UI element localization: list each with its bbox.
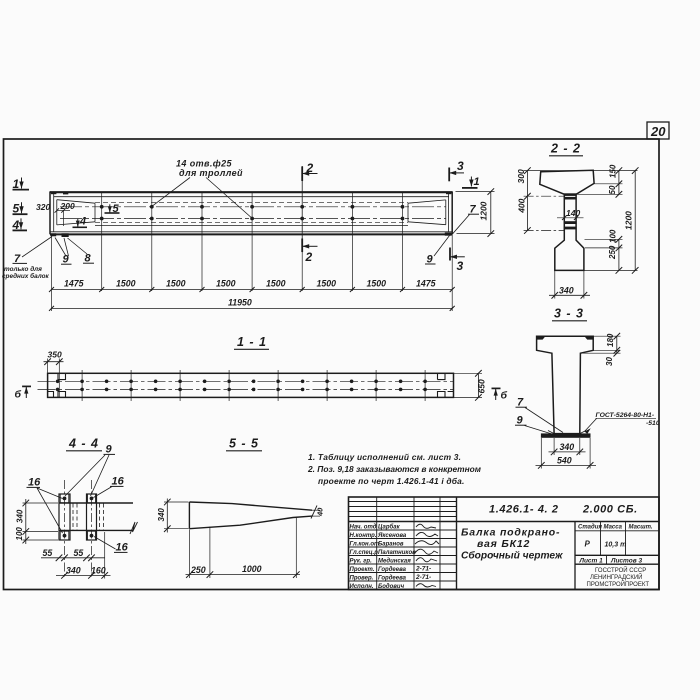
- svg-text:ГОССТРОЙ СССР: ГОССТРОЙ СССР: [595, 566, 646, 574]
- svg-text:Провер.: Провер.: [350, 575, 374, 581]
- svg-text:150: 150: [609, 164, 618, 178]
- svg-text:250: 250: [190, 565, 206, 575]
- svg-text:100: 100: [609, 229, 618, 243]
- svg-text:50: 50: [608, 185, 617, 194]
- svg-text:вая БК12: вая БК12: [477, 538, 530, 550]
- svg-text:5 - 5: 5 - 5: [229, 437, 259, 451]
- svg-text:2-71-: 2-71-: [415, 566, 431, 573]
- svg-text:Гордеева: Гордеева: [378, 575, 407, 581]
- svg-text:Масшт.: Масшт.: [629, 525, 653, 531]
- svg-text:340: 340: [66, 566, 81, 576]
- svg-text:1500: 1500: [266, 278, 286, 288]
- svg-text:б: б: [501, 390, 508, 402]
- svg-text:16: 16: [116, 542, 129, 554]
- svg-text:320: 320: [36, 202, 50, 212]
- svg-text:1475: 1475: [416, 278, 436, 288]
- svg-text:Бодович: Бодович: [378, 584, 405, 590]
- svg-text:Баранов: Баранов: [378, 541, 404, 547]
- svg-text:1475: 1475: [64, 278, 84, 288]
- svg-text:16: 16: [28, 477, 41, 489]
- svg-text:1500: 1500: [116, 278, 136, 288]
- svg-text:Яксенова: Яксенова: [377, 533, 407, 539]
- svg-text:-510: -510: [646, 420, 660, 427]
- svg-text:Сборочный чертеж: Сборочный чертеж: [461, 550, 563, 562]
- svg-text:Листов 3: Листов 3: [610, 557, 642, 564]
- svg-text:Балка подкрано-: Балка подкрано-: [461, 527, 560, 539]
- svg-text:б: б: [15, 389, 22, 401]
- svg-text:ПРОМСТРОЙПРОЕКТ: ПРОМСТРОЙПРОЕКТ: [587, 580, 650, 588]
- svg-text:16: 16: [112, 476, 125, 488]
- svg-text:1.426.1- 4. 2: 1.426.1- 4. 2: [489, 504, 559, 516]
- svg-text:5: 5: [113, 203, 120, 215]
- svg-text:Гл.спец.р: Гл.спец.р: [350, 550, 379, 556]
- svg-text:2-71-: 2-71-: [415, 574, 431, 581]
- svg-text:340: 340: [157, 508, 166, 522]
- svg-text:только для: только для: [4, 265, 42, 273]
- svg-text:14 отв.ф25: 14 отв.ф25: [176, 159, 233, 169]
- svg-text:180: 180: [606, 333, 615, 347]
- svg-text:Лист 1: Лист 1: [579, 557, 604, 564]
- svg-text:Царбак: Царбак: [378, 523, 401, 530]
- svg-text:340: 340: [560, 442, 575, 452]
- svg-text:Нач. отд: Нач. отд: [350, 524, 377, 530]
- svg-text:1500: 1500: [216, 278, 236, 288]
- svg-text:1000: 1000: [242, 564, 262, 574]
- svg-text:для троллей: для троллей: [179, 168, 243, 178]
- svg-text:1500: 1500: [367, 278, 387, 288]
- svg-text:20: 20: [650, 124, 666, 139]
- svg-text:160: 160: [91, 566, 106, 576]
- svg-text:1 - 1: 1 - 1: [237, 335, 267, 349]
- svg-text:1200: 1200: [479, 201, 489, 220]
- svg-text:55: 55: [74, 548, 84, 558]
- svg-text:средних балок: средних балок: [2, 272, 50, 280]
- svg-text:проекте по черт 1.426.1-41: проекте по черт 1.426.1-41 і дба.: [318, 476, 465, 486]
- svg-text:Стадия: Стадия: [578, 525, 602, 531]
- svg-text:Н.контр.: Н.контр.: [350, 533, 377, 539]
- svg-text:3 - 3: 3 - 3: [554, 307, 584, 321]
- svg-text:1200: 1200: [624, 211, 634, 230]
- svg-text:4 - 4: 4 - 4: [68, 437, 99, 451]
- svg-text:140: 140: [566, 208, 580, 218]
- svg-text:1500: 1500: [166, 278, 186, 288]
- svg-text:200: 200: [60, 201, 75, 211]
- svg-text:Масса: Масса: [604, 525, 623, 531]
- svg-text:1. Таблицу исполнений см. ли: 1. Таблицу исполнений см. лист 3.: [308, 452, 461, 462]
- svg-text:Р: Р: [585, 540, 591, 549]
- svg-text:1: 1: [474, 176, 480, 188]
- svg-text:30: 30: [605, 357, 614, 366]
- svg-text:340: 340: [16, 509, 25, 523]
- svg-text:540: 540: [557, 456, 572, 466]
- svg-text:2: 2: [306, 161, 314, 175]
- svg-text:250: 250: [608, 245, 617, 260]
- svg-text:10,3 т: 10,3 т: [605, 542, 627, 549]
- svg-text:ЛЕНИНГРАДСКИЙ: ЛЕНИНГРАДСКИЙ: [590, 573, 643, 581]
- svg-text:650: 650: [477, 379, 487, 393]
- svg-text:55: 55: [43, 548, 53, 558]
- svg-text:2.000 СБ.: 2.000 СБ.: [582, 504, 638, 516]
- svg-text:Мединская: Мединская: [378, 558, 411, 564]
- svg-text:Гордеева: Гордеева: [378, 567, 407, 573]
- svg-text:300: 300: [516, 169, 526, 183]
- svg-text:9: 9: [106, 444, 113, 456]
- svg-text:11950: 11950: [228, 297, 252, 307]
- svg-text:Исполн.: Исполн.: [350, 584, 374, 590]
- svg-text:1500: 1500: [317, 278, 337, 288]
- svg-text:3: 3: [457, 159, 464, 173]
- svg-text:Рук. гр.: Рук. гр.: [350, 558, 373, 564]
- svg-text:400: 400: [517, 198, 527, 213]
- svg-text:4: 4: [79, 216, 86, 228]
- svg-text:Проект.: Проект.: [350, 567, 375, 573]
- svg-text:Палатников: Палатников: [378, 550, 416, 556]
- svg-text:100: 100: [15, 527, 24, 541]
- svg-text:2: 2: [305, 250, 313, 264]
- svg-text:350: 350: [48, 350, 62, 360]
- svg-text:40: 40: [316, 507, 325, 517]
- svg-text:2 - 2: 2 - 2: [550, 142, 581, 156]
- svg-text:Гл.кон.от: Гл.кон.от: [350, 541, 381, 547]
- svg-text:340: 340: [559, 286, 574, 296]
- svg-text:3: 3: [457, 259, 464, 273]
- svg-text:2. Поз. 9,18 заказываются в ко: 2. Поз. 9,18 заказываются в конкретном: [307, 464, 482, 474]
